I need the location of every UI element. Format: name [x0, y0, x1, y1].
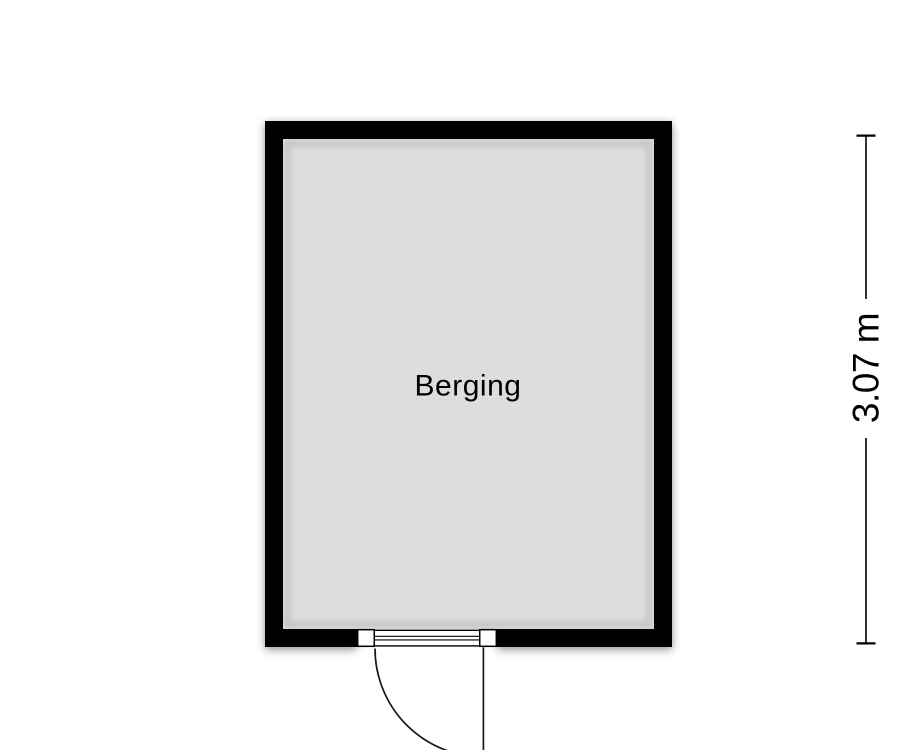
dimension-label: 3.07 m [846, 313, 887, 423]
door-threshold [374, 630, 479, 646]
door-jamb-right [480, 630, 497, 647]
floor-plan-svg: Berging 3.07 m [0, 0, 900, 750]
room-label: Berging [415, 370, 522, 403]
door-jamb-left [358, 630, 375, 647]
floor-plan-canvas: Berging 3.07 m [0, 0, 900, 750]
